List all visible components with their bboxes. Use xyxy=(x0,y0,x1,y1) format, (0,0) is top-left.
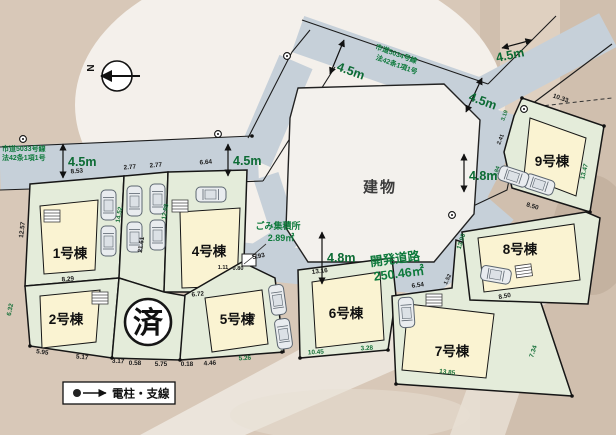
building: 建物 xyxy=(286,84,480,262)
dim-parking-2: 2.77 xyxy=(149,161,162,169)
site-plan-drawing: 建物 1号棟 2号棟 4号棟 済 5号棟 xyxy=(0,0,616,435)
dim-parking-1: 2.77 xyxy=(123,163,136,171)
dim-lot1-top: 8.53 xyxy=(70,167,83,175)
lot-9-label: 9号棟 xyxy=(535,153,570,169)
building-label: 建物 xyxy=(363,178,397,196)
dim-south-2: 5.17 xyxy=(76,353,90,361)
lot-1-label: 1号棟 xyxy=(53,245,88,261)
stairs-icon xyxy=(515,264,533,278)
car-icon xyxy=(101,226,116,256)
garbage-label: ごみ集積所 xyxy=(255,220,300,231)
lot-8-label: 8号棟 xyxy=(503,241,538,257)
pole-icon xyxy=(215,131,222,138)
dim-garbage-2: 0.80 xyxy=(233,266,244,272)
dim-lot1-bottom: 8.29 xyxy=(61,275,74,283)
dim-lot4-bottom: 6.72 xyxy=(191,290,205,298)
lot-2-label: 2号棟 xyxy=(49,311,84,327)
dim-south-3: 3.17 xyxy=(112,358,125,366)
dim-lot4-top: 6.64 xyxy=(199,158,212,166)
car-icon xyxy=(150,220,165,250)
pole-icon xyxy=(20,136,27,143)
car-icon xyxy=(127,186,142,216)
pole-icon xyxy=(449,212,456,219)
car-icon xyxy=(398,297,415,328)
stairs-icon xyxy=(426,294,442,306)
dim-south-7: 4.46 xyxy=(204,360,217,368)
dim-garbage-1: 1.11 xyxy=(218,265,229,271)
dim-south-5: 5.75 xyxy=(155,361,168,368)
compass-north-label: N xyxy=(86,64,97,71)
pole-icon xyxy=(521,106,528,113)
pole-icon xyxy=(284,53,291,60)
road-west-law: 法42条1項1号 xyxy=(2,153,46,162)
car-icon xyxy=(196,187,226,202)
dim-south-10: 3.28 xyxy=(360,345,373,353)
lot-4-label: 4号棟 xyxy=(192,243,227,259)
dim-south-6: 0.18 xyxy=(181,361,194,368)
road-west-name: 市道5033号線 xyxy=(2,144,46,153)
garbage-area: 2.89㎡ xyxy=(268,232,295,243)
dim-south-8: 5.26 xyxy=(238,355,251,363)
stairs-icon xyxy=(92,292,108,304)
site-plan: 建物 1号棟 2号棟 4号棟 済 5号棟 xyxy=(0,0,616,435)
width-west-2: 4.5m xyxy=(233,154,262,168)
sold-stamp: 済 xyxy=(133,307,164,340)
lot-6-label: 6号棟 xyxy=(329,305,364,321)
dim-south-4: 0.58 xyxy=(129,360,142,367)
stairs-icon xyxy=(44,210,60,222)
stairs-icon xyxy=(172,200,188,212)
pole-legend-icon xyxy=(73,389,81,397)
lot-7-label: 7号棟 xyxy=(435,343,470,359)
dim-south-9: 10.45 xyxy=(308,348,325,356)
lot-2: 2号棟 xyxy=(25,278,119,358)
legend-label: 電柱・支線 xyxy=(112,387,170,401)
width-south: 4.8m xyxy=(327,251,356,265)
legend: 電柱・支線 xyxy=(63,382,175,404)
car-icon xyxy=(101,190,116,220)
